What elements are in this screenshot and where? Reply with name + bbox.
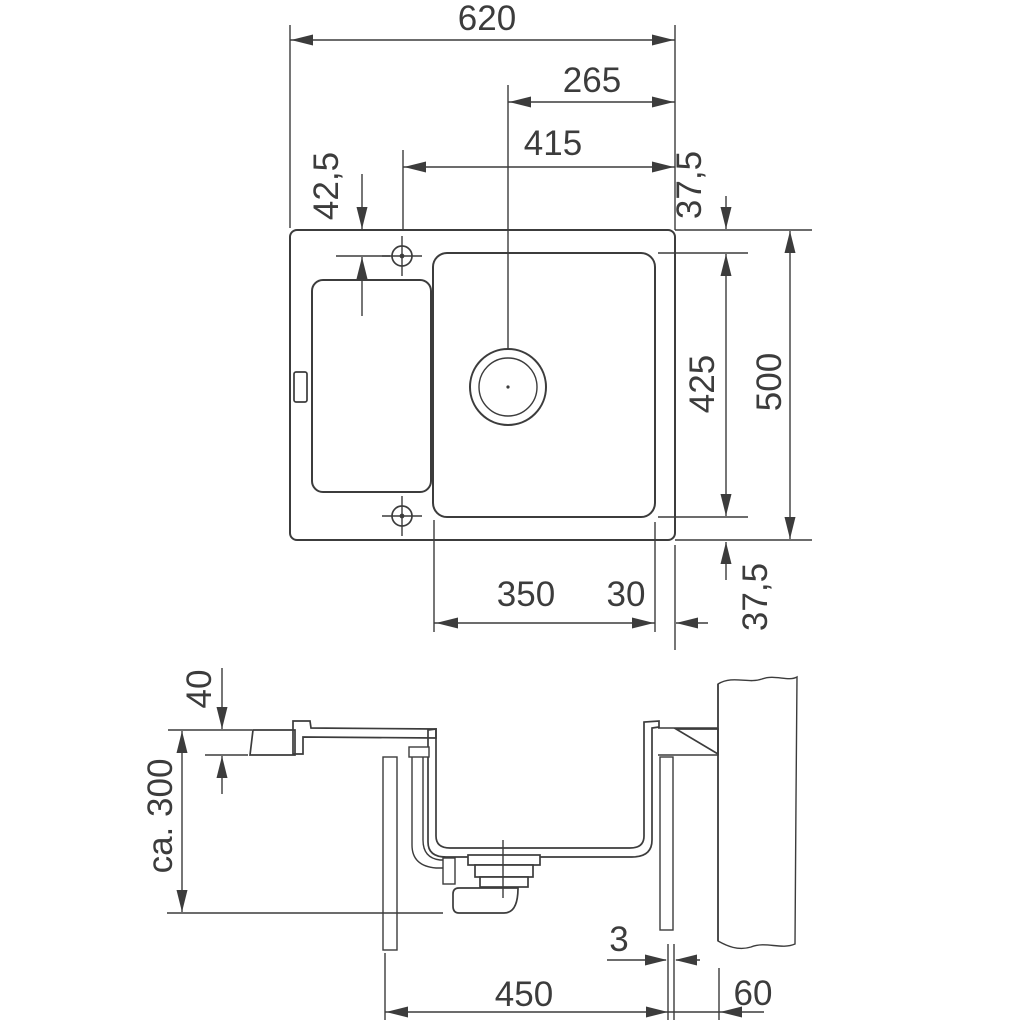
dim-450: 450: [385, 953, 764, 1020]
tap-hole-marker-bottom: [382, 496, 422, 536]
bowl: [433, 253, 655, 517]
dim-350-label: 350: [497, 575, 555, 614]
dim-ca-300: ca. 300: [141, 731, 443, 913]
sink-outline: [290, 230, 675, 540]
dim-37-5-top-label: 37,5: [670, 151, 709, 219]
dim-265: 265: [508, 61, 675, 108]
dim-620: 620: [290, 0, 675, 46]
section-view: 40 ca. 300 3 450: [141, 668, 797, 1020]
dim-450-label: 450: [495, 975, 553, 1014]
dim-37-5-bottom: 37,5: [721, 542, 776, 631]
dim-500: 500: [750, 231, 796, 539]
dim-425-label: 425: [683, 355, 722, 413]
overflow-slot: [294, 372, 307, 402]
dim-40: 40: [168, 668, 252, 794]
dim-60: 60: [719, 968, 772, 1020]
dim-500-label: 500: [750, 353, 789, 411]
sink-dimension-drawing: 620 265 415 42,5 37,5: [0, 0, 1024, 1024]
dim-30-label: 30: [607, 575, 646, 614]
bowl-section: [428, 721, 659, 857]
dim-42-5-label: 42,5: [307, 152, 346, 220]
countertop-right: [676, 729, 718, 754]
top-view: 620 265 415 42,5 37,5: [290, 0, 812, 650]
drainboard: [312, 280, 431, 492]
dim-415-label: 415: [524, 124, 582, 163]
dim-620-label: 620: [458, 0, 516, 38]
dim-3: 3: [607, 920, 700, 1020]
dim-425: 425: [683, 254, 732, 516]
top-view-extension-lines: [290, 25, 812, 650]
dim-265-label: 265: [563, 61, 621, 100]
dim-ca-300-label: ca. 300: [141, 759, 180, 874]
dim-60-label: 60: [734, 974, 773, 1013]
countertop-left: [250, 730, 295, 755]
drain-trap: [453, 840, 540, 913]
dim-42-5: 42,5: [307, 152, 368, 316]
technical-drawing-canvas: 620 265 415 42,5 37,5: [0, 0, 1024, 1024]
cabinet-panel-right: [660, 757, 673, 930]
brick-wall: [718, 677, 797, 948]
dim-30: 30: [607, 575, 708, 629]
dim-415: 415: [403, 124, 675, 173]
dim-37-5-top: 37,5: [670, 151, 732, 229]
overflow-pipe: [409, 747, 455, 884]
dim-40-label: 40: [180, 670, 219, 709]
dim-37-5-bottom-label: 37,5: [736, 563, 775, 631]
cabinet-panel-left: [383, 757, 397, 950]
dim-3-label: 3: [609, 920, 628, 959]
